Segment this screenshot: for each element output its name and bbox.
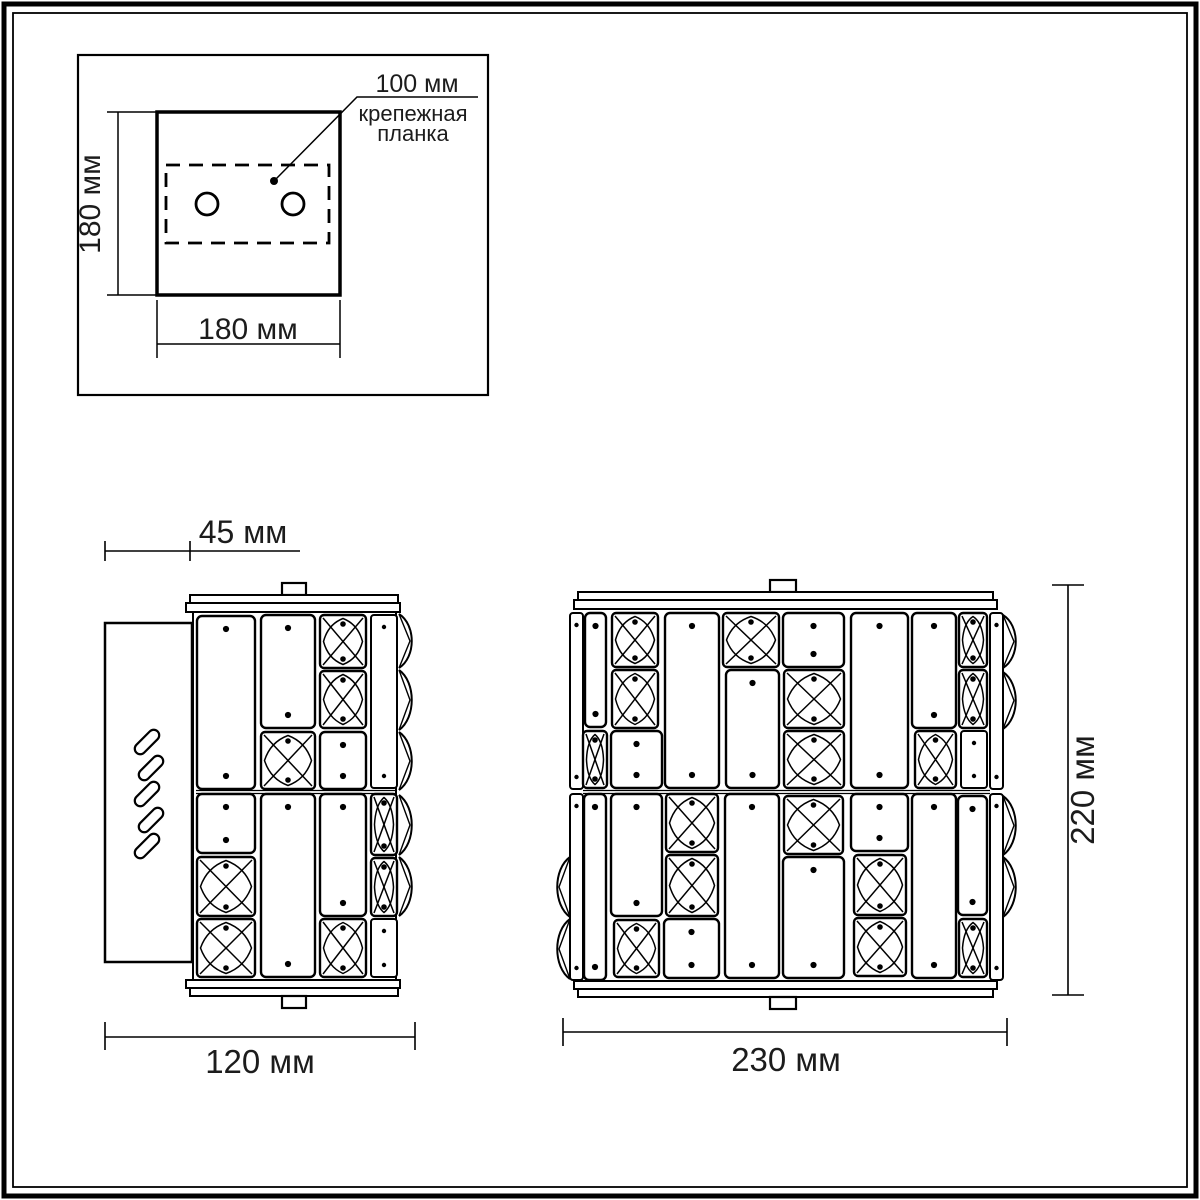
tile-outline (725, 794, 779, 978)
crystal-tile (197, 857, 255, 916)
pin-dot (876, 804, 882, 810)
pin-dot (382, 774, 386, 778)
pin-dot (811, 716, 817, 722)
pin-dot (340, 677, 346, 683)
pin-dot (574, 775, 578, 779)
pin-dot (749, 804, 755, 810)
panel-tile (371, 615, 397, 788)
crystal-tile (614, 920, 659, 977)
pin-dot (689, 772, 695, 778)
tile-outline (371, 615, 397, 788)
pin-dot (970, 925, 976, 931)
pin-dot (340, 965, 346, 971)
pin-dot (285, 738, 291, 744)
tile-outline (371, 919, 397, 977)
crystal-tile (959, 670, 987, 728)
pin-dot (933, 737, 939, 743)
pin-dot (632, 716, 638, 722)
tile-outline (783, 613, 844, 667)
crystal-tile (854, 855, 906, 915)
plate-height-label: 180 мм (74, 154, 107, 254)
pin-dot (592, 964, 598, 970)
pin-dot (285, 777, 291, 783)
pin-dot (748, 655, 754, 661)
panel-tile (570, 613, 583, 789)
panel-tile (958, 796, 987, 915)
crystal-tile (915, 731, 956, 788)
pin-dot (633, 772, 639, 778)
pin-dot (970, 716, 976, 722)
panel-tile (611, 794, 662, 916)
pin-dot (810, 867, 816, 873)
pin-dot (340, 773, 346, 779)
pin-dot (633, 741, 639, 747)
panel-tile (961, 731, 987, 788)
pin-dot (632, 676, 638, 682)
pin-dot (223, 965, 229, 971)
pin-dot (592, 804, 598, 810)
tile-outline (197, 794, 255, 853)
pin-dot (810, 623, 816, 629)
pin-dot (876, 772, 882, 778)
bottom-plate-upper (574, 981, 997, 989)
tile-outline (570, 794, 583, 980)
pin-dot (876, 623, 882, 629)
side-view: 45 мм 120 мм (105, 514, 415, 1080)
pin-dot (340, 656, 346, 662)
panel-tile (783, 857, 844, 978)
pin-dot (969, 899, 975, 905)
pin-dot (381, 864, 387, 870)
bottom-plate-lower (578, 989, 993, 997)
pin-dot (688, 962, 694, 968)
crystal-tile (371, 858, 397, 916)
pin-dot (994, 623, 998, 627)
pin-dot (382, 963, 386, 967)
pin-dot (223, 837, 229, 843)
tile-outline (664, 919, 719, 978)
crystal-tile (197, 919, 255, 977)
pin-dot (633, 804, 639, 810)
pin-dot (969, 806, 975, 812)
pin-dot (933, 776, 939, 782)
panel-tile (320, 732, 366, 789)
panel-tile (261, 794, 315, 977)
pin-dot (970, 655, 976, 661)
crystal-tile (784, 731, 844, 788)
tile-outline (958, 796, 987, 915)
pin-dot (931, 712, 937, 718)
panel-tile (912, 794, 956, 978)
pin-dot (340, 804, 346, 810)
pin-dot (592, 776, 598, 782)
pin-dot (592, 623, 598, 629)
crystal-tile (854, 918, 906, 976)
panel-tile (570, 794, 583, 980)
mounting-hole-right (282, 193, 304, 215)
top-tab (770, 580, 796, 592)
tile-outline (961, 731, 987, 788)
pin-dot (223, 773, 229, 779)
tile-outline (570, 613, 583, 789)
tile-outline (912, 613, 956, 728)
panel-tile (665, 613, 719, 788)
pin-dot (994, 775, 998, 779)
tile-outline (320, 732, 366, 789)
plate-height-dimension-line (107, 112, 157, 295)
tile-outline (726, 670, 779, 788)
panel-tile (261, 615, 315, 728)
pin-dot (970, 676, 976, 682)
panel-tile (726, 670, 779, 788)
crystal-tile-mosaic (197, 615, 397, 977)
pin-dot (340, 900, 346, 906)
pin-dot (689, 623, 695, 629)
tile-outline (320, 794, 366, 916)
pin-dot (633, 900, 639, 906)
crystal-tile (959, 613, 987, 667)
top-plate-lower (186, 603, 400, 612)
panel-tile (851, 613, 908, 788)
pin-dot (877, 861, 883, 867)
panel-tile (664, 919, 719, 978)
pin-dot (340, 925, 346, 931)
pin-dot (810, 651, 816, 657)
pin-dot (574, 966, 578, 970)
pin-dot (811, 676, 817, 682)
tile-outline (990, 613, 1003, 789)
pin-dot (382, 625, 386, 629)
pin-dot (688, 929, 694, 935)
pin-dot (811, 737, 817, 743)
pin-dot (592, 737, 598, 743)
pin-dot (749, 772, 755, 778)
bottom-plate-upper (186, 980, 400, 988)
pin-dot (748, 619, 754, 625)
crystal-tile (371, 794, 397, 855)
pin-dot (931, 623, 937, 629)
pin-dot (689, 904, 695, 910)
pin-dot (689, 840, 695, 846)
crystal-profile-bumps (399, 614, 412, 916)
pin-dot (632, 655, 638, 661)
pin-dot (223, 804, 229, 810)
crystal-tile (784, 796, 843, 854)
panel-tile (197, 616, 255, 789)
mounting-hole-left (196, 193, 218, 215)
pin-dot (994, 966, 998, 970)
tile-outline (665, 613, 719, 788)
front-width-label: 230 мм (731, 1041, 841, 1078)
pin-dot (592, 711, 598, 717)
depth-label: 45 мм (199, 514, 287, 550)
pin-dot (634, 965, 640, 971)
crystal-tile (959, 919, 987, 977)
side-width-label: 120 мм (205, 1043, 315, 1080)
tile-outline (584, 794, 606, 980)
panel-tile (912, 613, 956, 728)
panel-tile (584, 794, 606, 980)
crystal-tile-mosaic (570, 613, 1003, 980)
panel-tile (585, 613, 606, 727)
pin-dot (340, 742, 346, 748)
panel-tile (990, 613, 1003, 789)
top-plate-lower (574, 600, 997, 609)
front-view: 230 мм 220 мм (557, 580, 1101, 1078)
panel-tile (783, 613, 844, 667)
panel-tile (197, 794, 255, 853)
pin-dot (876, 835, 882, 841)
tile-outline (611, 731, 662, 788)
pin-dot (574, 623, 578, 627)
pin-dot (223, 863, 229, 869)
tile-outline (261, 615, 315, 728)
mounting-plate-outline (157, 112, 340, 295)
tile-outline (990, 794, 1003, 980)
crystal-tile (723, 613, 779, 667)
pin-dot (223, 904, 229, 910)
pin-dot (931, 962, 937, 968)
technical-drawing: 180 мм 180 мм 100 мм крепежная планка 45… (0, 0, 1200, 1200)
pin-dot (689, 800, 695, 806)
pin-dot (285, 804, 291, 810)
mounting-plate-view: 180 мм 180 мм 100 мм крепежная планка (74, 55, 488, 395)
pin-dot (223, 925, 229, 931)
panel-tile (990, 794, 1003, 980)
pin-dot (811, 802, 817, 808)
pin-dot (632, 619, 638, 625)
tile-outline (851, 794, 908, 851)
pin-dot (972, 741, 976, 745)
crystal-tile (320, 919, 366, 977)
crystal-tile (320, 671, 366, 728)
pin-dot (285, 961, 291, 967)
pin-dot (340, 621, 346, 627)
pin-dot (877, 903, 883, 909)
panel-tile (320, 794, 366, 916)
crystal-tile (320, 615, 366, 668)
pin-dot (689, 861, 695, 867)
tile-outline (783, 857, 844, 978)
plate-width-label: 180 мм (198, 313, 298, 346)
pin-dot (931, 804, 937, 810)
panel-tile (611, 731, 662, 788)
pin-dot (381, 904, 387, 910)
tile-outline (851, 613, 908, 788)
panel-tile (725, 794, 779, 978)
bracket-name-line2: планка (377, 121, 449, 146)
panel-tile (851, 794, 908, 851)
pin-dot (811, 776, 817, 782)
pin-dot (381, 800, 387, 806)
tile-outline (912, 794, 956, 978)
pin-dot (994, 804, 998, 808)
front-height-label: 220 мм (1064, 735, 1101, 845)
crystal-tile (612, 670, 658, 728)
bottom-tab (282, 996, 306, 1008)
crystal-tile (666, 855, 718, 916)
top-plate-upper (578, 592, 993, 600)
pin-dot (810, 962, 816, 968)
pin-dot (574, 804, 578, 808)
tile-outline (585, 613, 606, 727)
pin-dot (285, 712, 291, 718)
bracket-size-label: 100 мм (375, 70, 458, 98)
bottom-plate-lower (190, 988, 398, 996)
bottom-tab (770, 997, 796, 1009)
crystal-tile (784, 670, 844, 728)
pin-dot (749, 680, 755, 686)
crystal-tile (666, 794, 718, 852)
tile-outline (611, 794, 662, 916)
tile-outline (197, 616, 255, 789)
pin-dot (811, 842, 817, 848)
panel-tile (371, 919, 397, 977)
drawing-sheet: 180 мм 180 мм 100 мм крепежная планка 45… (0, 0, 1200, 1200)
pin-dot (877, 924, 883, 930)
pin-dot (970, 965, 976, 971)
pin-dot (970, 619, 976, 625)
pin-dot (285, 625, 291, 631)
pin-dot (972, 774, 976, 778)
pin-dot (223, 626, 229, 632)
pin-dot (340, 716, 346, 722)
crystal-tile (612, 613, 658, 667)
pin-dot (749, 962, 755, 968)
crystal-tile (583, 731, 607, 788)
pin-dot (877, 964, 883, 970)
top-plate-upper (190, 595, 398, 603)
pin-dot (381, 843, 387, 849)
crystal-tile (261, 732, 315, 789)
tile-outline (261, 794, 315, 977)
pin-dot (634, 926, 640, 932)
top-tab (282, 583, 306, 595)
pin-dot (382, 929, 386, 933)
